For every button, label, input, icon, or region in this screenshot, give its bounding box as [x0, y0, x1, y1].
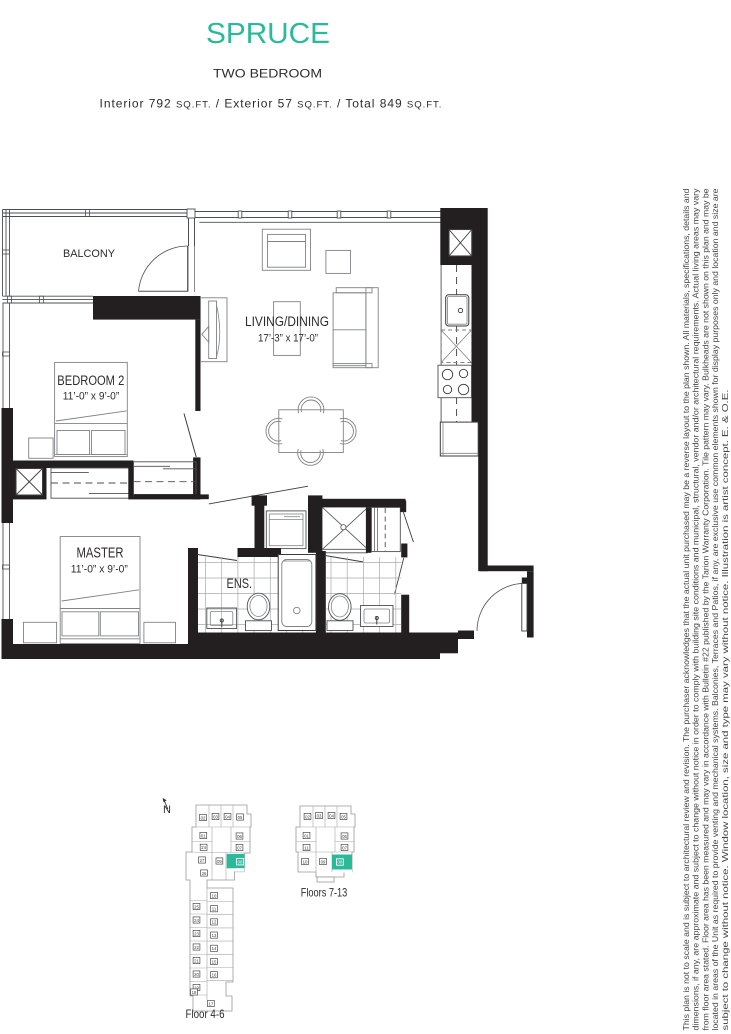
svg-text:BEDROOM 2: BEDROOM 2	[57, 373, 124, 388]
svg-text:11: 11	[212, 907, 217, 912]
svg-text:N: N	[163, 804, 171, 816]
svg-text:13: 13	[212, 933, 217, 938]
svg-text:ENS.: ENS.	[227, 575, 253, 591]
svg-text:MASTER: MASTER	[77, 546, 124, 562]
svg-text:11: 11	[304, 845, 309, 850]
svg-text:04: 04	[329, 813, 334, 818]
svg-text:05: 05	[238, 815, 243, 820]
svg-text:SPRUCE: SPRUCE	[206, 18, 330, 50]
svg-text:06: 06	[237, 834, 242, 839]
svg-text:07: 07	[237, 845, 242, 850]
svg-text:22: 22	[194, 945, 199, 950]
svg-text:24: 24	[194, 918, 199, 923]
svg-text:LIVING/DINING: LIVING/DINING	[245, 314, 329, 329]
svg-text:15: 15	[212, 959, 217, 964]
svg-text:05: 05	[341, 814, 346, 819]
svg-text:subject to change without noti: subject to change without notice. Window…	[720, 390, 730, 1031]
svg-text:from floor area stated. Floor: from floor area stated. Floor area has b…	[700, 188, 710, 1030]
svg-text:27: 27	[200, 858, 205, 863]
svg-text:TWO BEDROOM: TWO BEDROOM	[213, 67, 322, 81]
svg-text:01: 01	[201, 833, 206, 838]
svg-text:01: 01	[304, 833, 309, 838]
svg-text:03: 03	[317, 813, 322, 818]
svg-text:18: 18	[192, 990, 197, 995]
svg-text:17: 17	[209, 1001, 214, 1006]
svg-text:10: 10	[212, 893, 217, 898]
svg-text:07: 07	[342, 845, 347, 850]
svg-text:26: 26	[202, 871, 207, 876]
svg-text:09: 09	[321, 859, 326, 864]
svg-text:06: 06	[342, 834, 347, 839]
svg-text:11’-0” x 9’-0”: 11’-0” x 9’-0”	[71, 564, 128, 576]
svg-text:located in areas of the Unit a: located in areas of the Unit as required…	[710, 188, 720, 1030]
svg-text:BALCONY: BALCONY	[63, 248, 115, 260]
svg-text:This plan is not to scale and: This plan is not to scale and is subject…	[681, 188, 691, 1030]
svg-text:25: 25	[194, 904, 199, 909]
svg-text:03: 03	[213, 814, 218, 819]
svg-text:10: 10	[303, 859, 308, 864]
svg-text:08: 08	[338, 860, 343, 865]
svg-text:02: 02	[201, 815, 206, 820]
svg-text:21: 21	[194, 958, 199, 963]
svg-text:09: 09	[217, 859, 222, 864]
svg-text:16: 16	[212, 973, 217, 978]
svg-text:17’-3” x 17’-0”: 17’-3” x 17’-0”	[258, 333, 318, 345]
svg-text:Floor 4-6: Floor 4-6	[186, 1008, 225, 1021]
svg-text:dimensions, if any, are approx: dimensions, if any, are approximate and …	[691, 188, 701, 1031]
svg-text:20: 20	[194, 972, 199, 977]
svg-text:04: 04	[225, 814, 230, 819]
svg-text:24: 24	[201, 845, 206, 850]
svg-text:08: 08	[238, 859, 243, 864]
svg-text:11’-0” x 9’-0”: 11’-0” x 9’-0”	[63, 391, 120, 403]
svg-text:Floors 7-13: Floors 7-13	[301, 887, 348, 900]
svg-text:14: 14	[212, 946, 217, 951]
svg-text:02: 02	[305, 814, 310, 819]
svg-text:12: 12	[212, 920, 217, 925]
svg-text:23: 23	[194, 931, 199, 936]
svg-text:Interior 792 SQ.FT. / Exterior: Interior 792 SQ.FT. / Exterior 57 SQ.FT.…	[100, 97, 443, 111]
